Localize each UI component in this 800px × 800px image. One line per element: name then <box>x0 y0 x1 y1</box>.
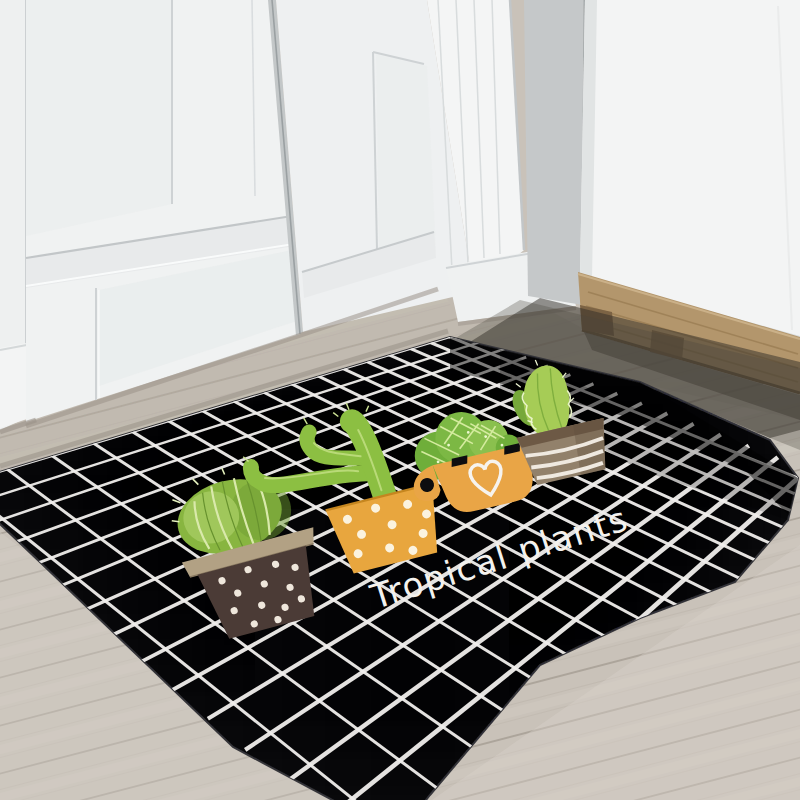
wall-strip <box>524 0 585 305</box>
door-right-panel <box>376 54 436 252</box>
doormat-product-photo: Tropical plants <box>0 0 800 800</box>
scene-svg: Tropical plants <box>0 0 800 800</box>
door-left-upper-panel <box>26 0 172 236</box>
